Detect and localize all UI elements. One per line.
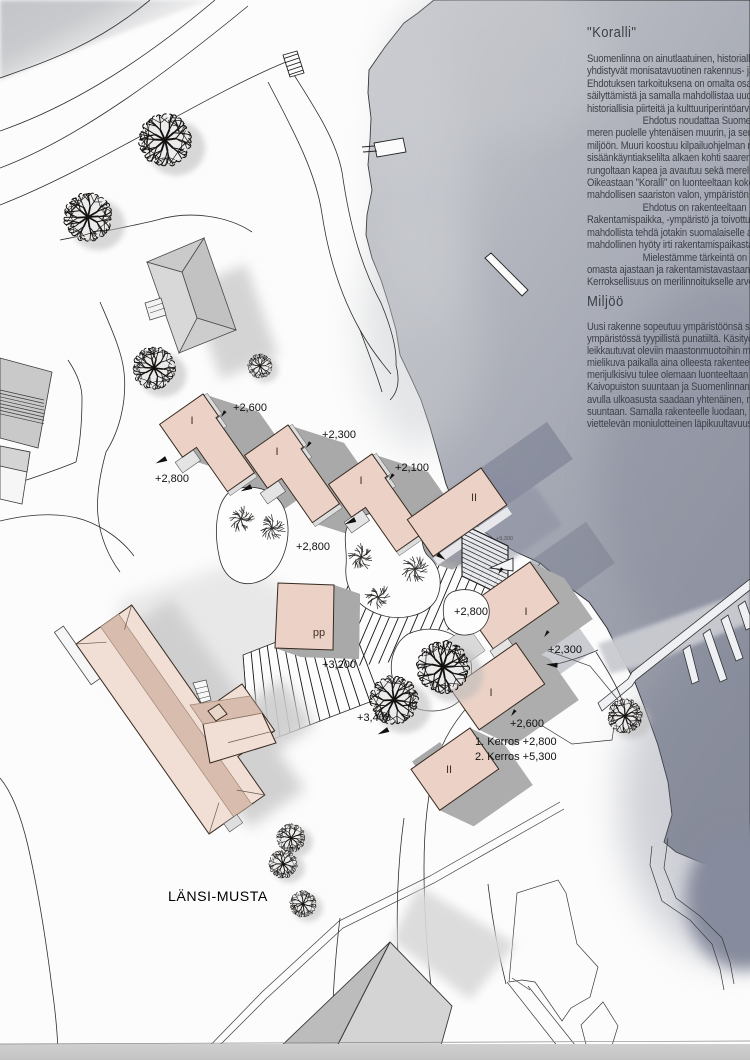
svg-text:I: I [489, 687, 492, 699]
svg-text:I: I [524, 606, 527, 618]
svg-text:+2,600: +2,600 [510, 718, 544, 730]
svg-text:I: I [359, 475, 362, 487]
svg-text:I: I [190, 415, 193, 427]
svg-text:LÄNSI-MUSTA: LÄNSI-MUSTA [168, 888, 268, 905]
svg-text:+2,300: +2,300 [322, 429, 356, 441]
svg-text:+3,200: +3,200 [322, 659, 356, 671]
svg-text:+2,600: +2,600 [233, 402, 267, 414]
svg-text:I: I [275, 446, 278, 458]
svg-text:+3,400: +3,400 [357, 712, 391, 724]
svg-text:II: II [471, 492, 477, 504]
svg-text:+2,100: +2,100 [395, 462, 429, 474]
svg-text:pp: pp [313, 627, 325, 639]
svg-text:1. Kerros +2,800: 1. Kerros +2,800 [475, 736, 557, 748]
svg-text:+2,800: +2,800 [296, 541, 330, 553]
svg-text:+2,300: +2,300 [548, 644, 582, 656]
svg-text:+2,800: +2,800 [454, 606, 488, 618]
svg-text:2. Kerros +5,300: 2. Kerros +5,300 [475, 751, 557, 763]
svg-text:+9,300: +9,300 [496, 536, 513, 542]
svg-text:II: II [446, 764, 452, 776]
svg-text:+2,800: +2,800 [155, 473, 189, 485]
